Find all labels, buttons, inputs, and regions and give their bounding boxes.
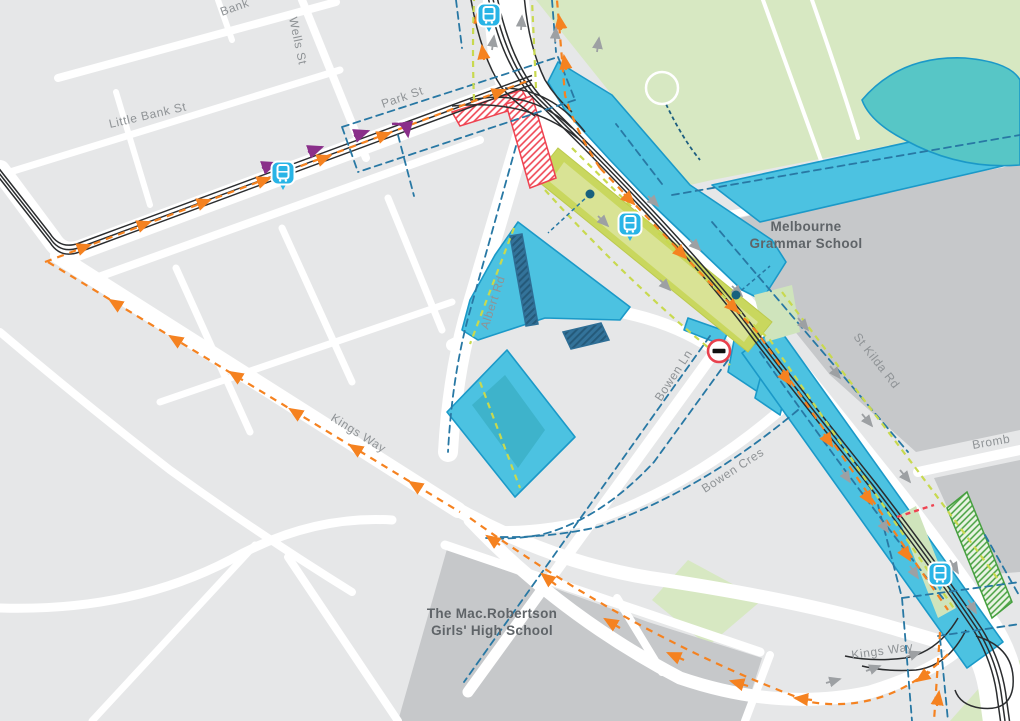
place-label-grammar-2: Grammar School — [750, 236, 863, 251]
works-map: Bank Wells St Little Bank St Park St Alb… — [0, 0, 1020, 721]
no-entry-icon — [708, 340, 730, 362]
map-canvas: Bank Wells St Little Bank St Park St Alb… — [0, 0, 1020, 721]
leader-dot — [732, 291, 741, 300]
place-label-grammar-1: Melbourne — [771, 219, 842, 234]
place-label-macrob-2: Girls' High School — [431, 623, 553, 638]
leader-dot — [586, 190, 595, 199]
place-label-macrob-1: The Mac.Robertson — [427, 606, 557, 621]
